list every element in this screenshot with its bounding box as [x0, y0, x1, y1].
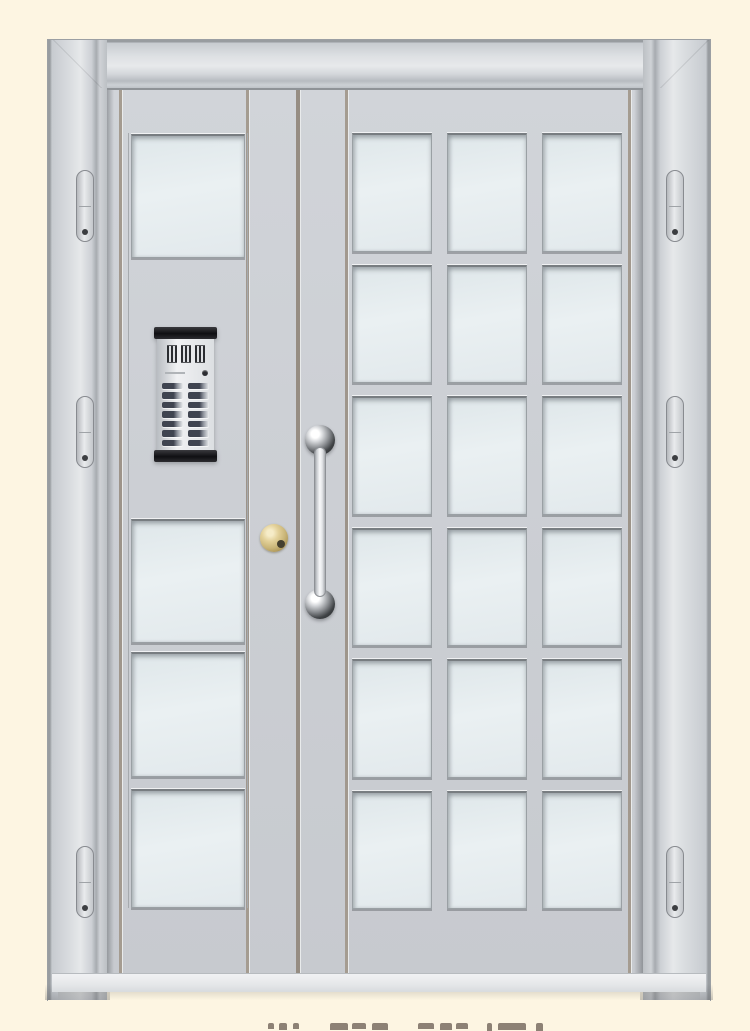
glass-pane: [352, 133, 432, 252]
caption-mark: [418, 1023, 434, 1029]
floor-shadow: [58, 992, 700, 1000]
glass-pane: [542, 396, 622, 515]
glass-pane: [352, 791, 432, 910]
cropped-caption: [0, 1022, 750, 1031]
intercom-panel: [154, 327, 217, 462]
intercom-call-button: [188, 430, 209, 436]
caption-mark: [487, 1023, 492, 1031]
door-frame-right-jamb: [643, 40, 710, 1000]
lock-cylinder: [260, 524, 288, 552]
grille-segment: [181, 345, 191, 363]
glass-pane: [542, 659, 622, 778]
right-leaf-glass-grid: [352, 133, 622, 909]
stile-groove: [628, 90, 632, 975]
intercom-call-button: [162, 383, 183, 389]
glass-pane: [131, 134, 245, 258]
right-leaf-edge-shadow: [634, 90, 643, 975]
glass-pane: [352, 396, 432, 515]
door-frame-left-jamb: [48, 40, 107, 1000]
hinge: [76, 846, 94, 918]
caption-mark: [456, 1023, 468, 1029]
hinge: [76, 170, 94, 242]
glass-pane: [447, 133, 527, 252]
glass-pane: [542, 133, 622, 252]
grille-segment: [167, 345, 177, 363]
door-frame-header: [48, 40, 710, 88]
caption-mark: [293, 1023, 299, 1029]
glass-pane: [131, 519, 245, 643]
door-product-photo: [0, 0, 750, 1031]
intercom-call-button: [188, 411, 209, 417]
caption-mark: [279, 1023, 287, 1030]
stile-groove: [119, 90, 123, 975]
glass-pane: [542, 791, 622, 910]
caption-mark: [498, 1023, 526, 1030]
intercom-call-buttons: [162, 383, 209, 446]
glass-pane: [447, 659, 527, 778]
glass-pane: [352, 528, 432, 647]
caption-mark: [536, 1023, 543, 1031]
intercom-call-button: [162, 430, 183, 436]
door-sill: [52, 973, 706, 992]
hinge: [666, 846, 684, 918]
intercom-call-button: [188, 440, 209, 446]
glass-pane: [131, 789, 245, 908]
intercom-call-button: [162, 440, 183, 446]
intercom-top-bar: [154, 327, 217, 339]
meeting-stile-groove: [296, 90, 301, 975]
caption-mark: [268, 1023, 274, 1029]
caption-mark: [330, 1023, 348, 1030]
glass-pane: [352, 659, 432, 778]
glass-pane: [131, 652, 245, 777]
intercom-speaker-grille-icon: [167, 345, 205, 363]
glass-pane: [352, 265, 432, 384]
intercom-call-button: [188, 402, 209, 408]
intercom-call-button: [188, 392, 209, 398]
caption-mark: [352, 1023, 366, 1029]
intercom-call-button: [162, 411, 183, 417]
intercom-bottom-bar: [154, 450, 217, 462]
intercom-slot: [165, 372, 185, 374]
glass-pane: [447, 396, 527, 515]
intercom-call-button: [188, 383, 209, 389]
intercom-body: [157, 339, 214, 450]
glass-pane: [447, 528, 527, 647]
hinge: [666, 396, 684, 468]
glass-pane: [447, 791, 527, 910]
intercom-camera-lens-icon: [202, 370, 208, 376]
hinge: [666, 170, 684, 242]
caption-mark: [440, 1023, 452, 1030]
pull-handle-bar: [314, 447, 326, 597]
intercom-call-button: [188, 421, 209, 427]
glass-pane: [542, 528, 622, 647]
left-leaf-edge-shadow: [107, 90, 114, 975]
hinge: [76, 396, 94, 468]
intercom-call-button: [162, 421, 183, 427]
stile-groove: [345, 90, 349, 975]
intercom-call-button: [162, 402, 183, 408]
intercom-call-button: [162, 392, 183, 398]
glass-pane: [542, 265, 622, 384]
caption-mark: [372, 1023, 388, 1030]
glass-pane: [447, 265, 527, 384]
grille-segment: [195, 345, 205, 363]
